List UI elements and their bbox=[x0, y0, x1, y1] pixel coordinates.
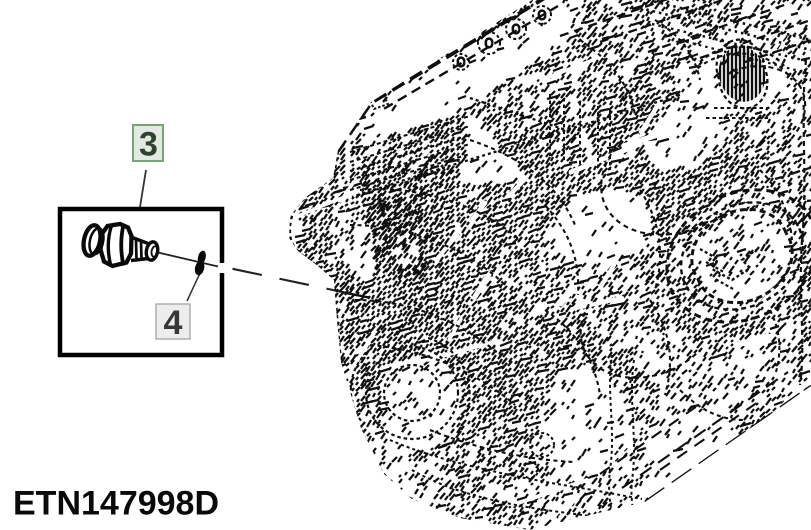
svg-text:3: 3 bbox=[139, 126, 158, 164]
svg-text:ETN147998D: ETN147998D bbox=[13, 485, 219, 523]
svg-text:4: 4 bbox=[164, 304, 183, 342]
